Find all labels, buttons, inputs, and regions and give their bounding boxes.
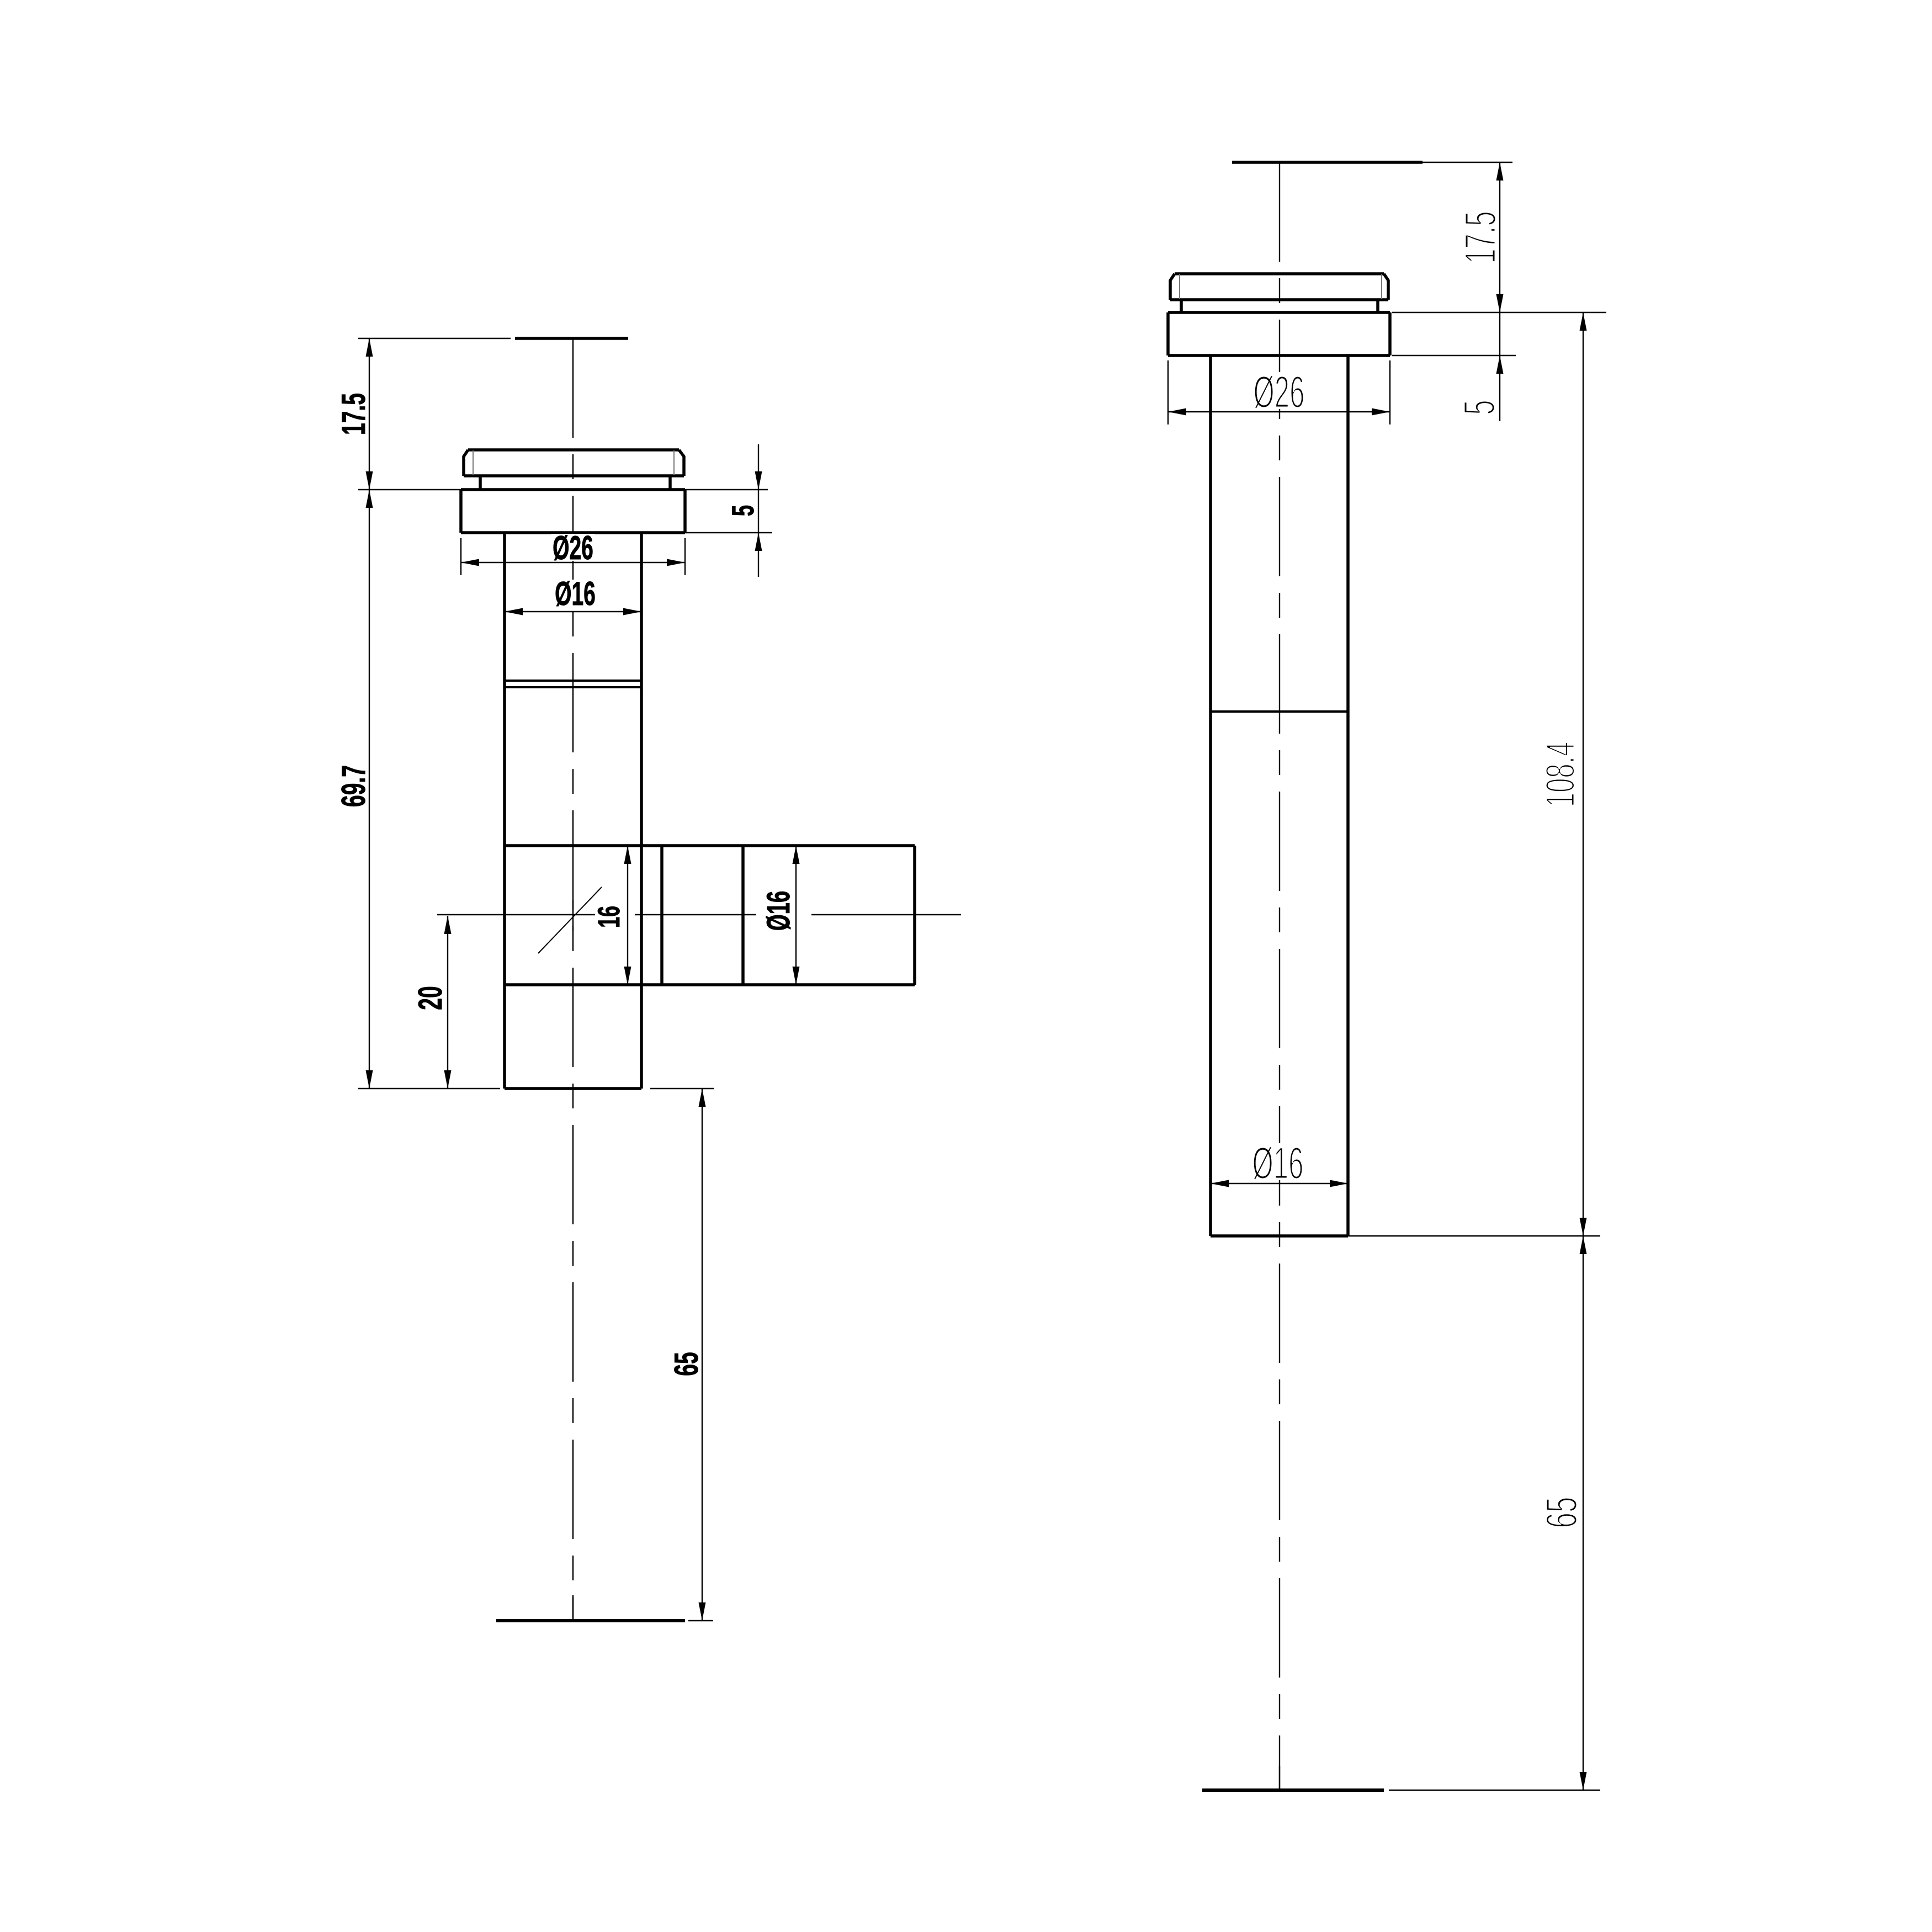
svg-text:20: 20 (411, 986, 449, 1010)
svg-text:65: 65 (1537, 1497, 1586, 1528)
svg-text:Ø16: Ø16 (1252, 1138, 1304, 1188)
svg-text:17.5: 17.5 (1456, 211, 1505, 264)
svg-text:5: 5 (1455, 400, 1504, 415)
svg-text:108.4: 108.4 (1538, 742, 1583, 807)
svg-text:Ø16: Ø16 (761, 891, 797, 931)
svg-text:69.7: 69.7 (335, 765, 372, 807)
svg-text:65: 65 (667, 1352, 705, 1376)
svg-text:17.5: 17.5 (335, 393, 372, 435)
svg-text:16: 16 (591, 906, 626, 928)
svg-text:5: 5 (726, 505, 761, 516)
svg-text:Ø16: Ø16 (555, 575, 596, 612)
svg-text:Ø26: Ø26 (1254, 367, 1305, 417)
svg-text:Ø26: Ø26 (553, 529, 593, 566)
